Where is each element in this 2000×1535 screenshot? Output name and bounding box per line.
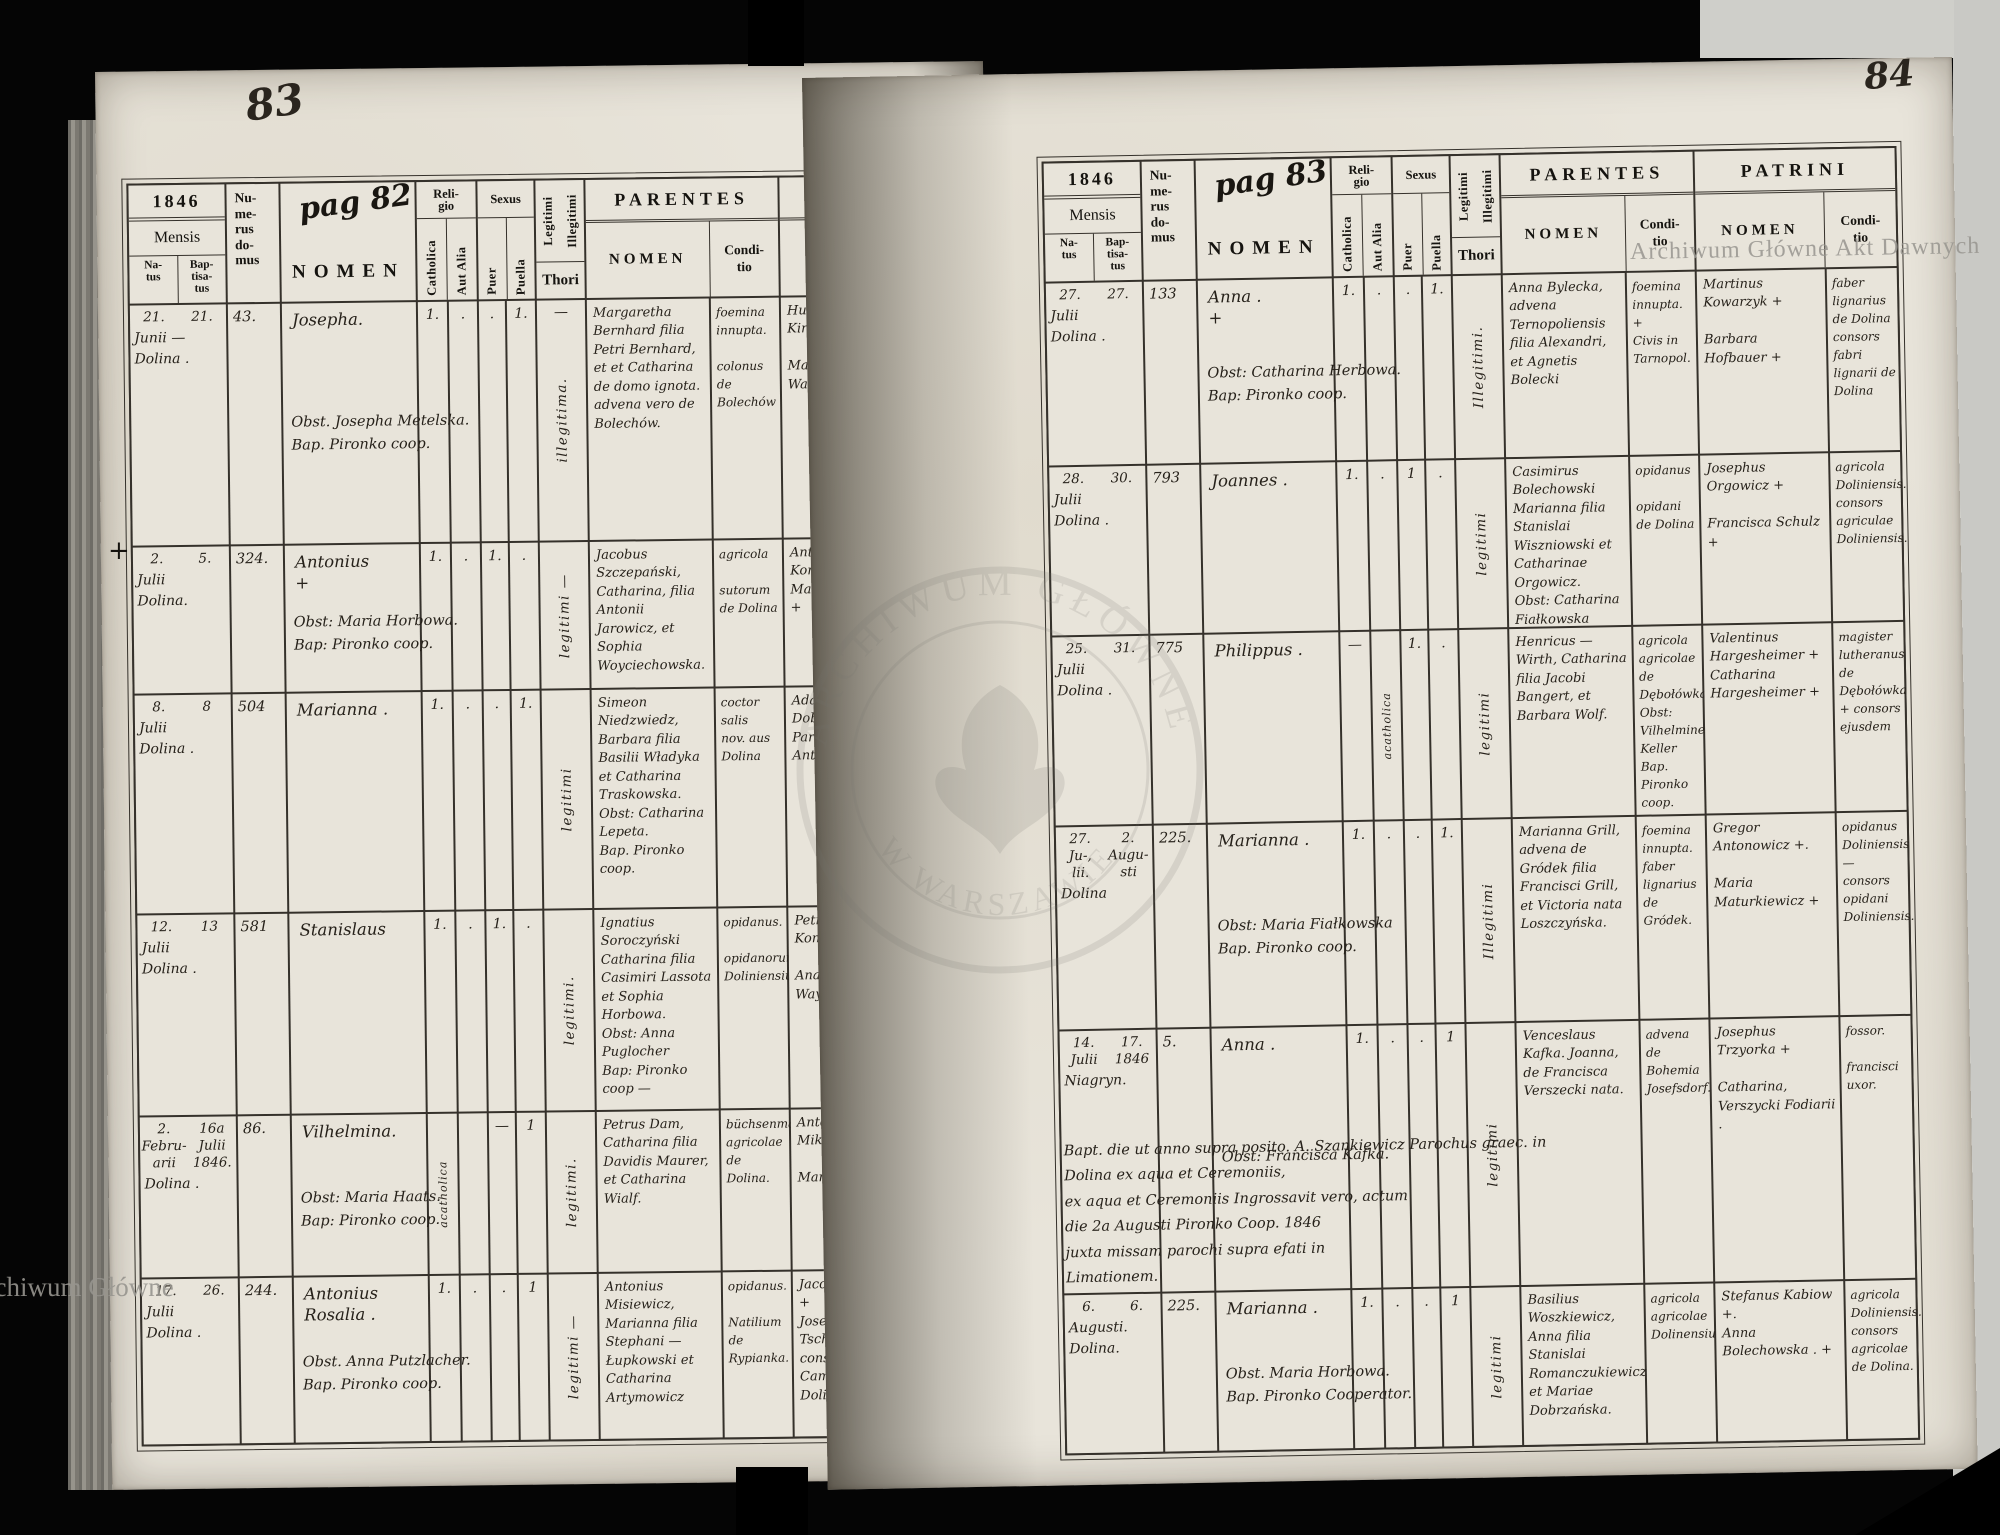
header-parentes: PARENTES NOMEN Condi- tio	[1501, 152, 1695, 273]
mark-puer: 1.	[1401, 631, 1430, 819]
baptisatus-day: 8	[183, 698, 231, 715]
natus-day: 8.	[135, 699, 183, 716]
header-parentes-label: PARENTES	[1501, 152, 1694, 199]
cell-date: 12. 13 Julii Dolina .	[137, 914, 235, 1115]
cell-date: 27. Ju-, lii. 2. Augu- sti Dolina	[1056, 826, 1156, 1030]
house-number: 793	[1147, 465, 1202, 634]
midwife-note: Obst. Anna Putzlacher. Bap. Pironko coop…	[303, 1348, 619, 1398]
header-aut-alia: Aut Alia	[1370, 223, 1386, 272]
header-legitimi: Legitimi	[1455, 172, 1471, 221]
cell-name: Anna . Obst: Francisca Kafka. Bapt. die …	[1211, 1026, 1350, 1290]
baptisatus-day: 21.	[178, 308, 226, 325]
mark-aut-alia: .	[456, 911, 486, 1111]
cell-name: Vilhelmina. Obst: Maria Haats. Bap: Piro…	[292, 1114, 428, 1276]
header-parentes-label: PARENTES	[585, 178, 778, 223]
header-legitimacy: Legitimi Illegitimi Thori	[535, 180, 584, 299]
header-aut-alia: Aut Alia	[454, 247, 470, 296]
page-number-right: 84	[1862, 52, 1916, 98]
thori-mark	[1453, 279, 1501, 280]
baptisatus-day: 13	[185, 918, 233, 935]
header-puella: Puella	[513, 258, 528, 295]
parentes-conditio: opidanus. opidanorum Doliniensium.	[718, 908, 788, 1109]
header-nomen: pag 82 NOMEN	[280, 182, 415, 302]
patrini-nomen: Gregor Antonowicz +. Maria Maturkiewicz …	[1707, 813, 1839, 1017]
marginal-note: Bapt. die ut anno supra posito. A. Szank…	[1063, 1130, 1551, 1291]
parentes-nomen: Ignatius Soroczyński Catharina filia Cas…	[594, 908, 718, 1109]
natus-day: 27.	[1046, 287, 1094, 305]
patrini-nomen: Martinus Kowarzyk + Barbara Hofbauer +	[1697, 269, 1828, 453]
header-numerus-domus: Nu- me- rus do- mus	[1142, 161, 1196, 280]
header-date-column: 1846 Mensis Na- tus Bap- tisa- tus	[1044, 162, 1142, 282]
midwife-note: Obst. Maria Horbowa. Bap. Pironko Cooper…	[1226, 1358, 1542, 1410]
house-number: 324.	[231, 546, 285, 693]
cell-name: Antonius Rosalia . Obst. Anna Putzlacher…	[294, 1276, 430, 1443]
patrini-nomen: Josephus Trzyorka + Catharina, Verszycki…	[1710, 1017, 1843, 1281]
parentes-conditio: agricola agricolae de Dębołówka. Obst: V…	[1633, 626, 1704, 815]
thori-mark	[1471, 1291, 1519, 1292]
header-patrini-label: PATRINI	[1694, 148, 1895, 195]
natus-day: 28.	[1049, 471, 1097, 489]
midwife-note: Obst: Maria Fiałkowska Bap. Pironko coop…	[1217, 910, 1533, 962]
header-parentes-nomen: NOMEN	[586, 222, 711, 299]
header-natus: Na- tus	[129, 256, 178, 304]
month-place: Niagryn.	[1060, 1067, 1156, 1092]
parentes-conditio: foemina innupta. faber lignarius de Gród…	[1637, 816, 1709, 1019]
midwife-note: Obst: Catharina Herbowa. Bap: Pironko co…	[1207, 357, 1523, 409]
month-place: Julii Dolina .	[135, 715, 232, 760]
mark-aut-alia: acatholica	[1371, 631, 1402, 819]
thori-mark	[544, 914, 592, 915]
legitimacy-note: legitimi	[1473, 511, 1490, 575]
baptisatus-day: 16a Julii 1846.	[188, 1120, 237, 1171]
month-place: Junii — Dolina .	[130, 325, 227, 370]
cell-date: 2. Febru- arii 16a Julii 1846. Dolina .	[140, 1116, 238, 1277]
header-religio-label: Reli- gio	[1332, 157, 1392, 195]
header-religio: Reli- gio Catholica Aut Alia	[1332, 157, 1393, 276]
patrini-conditio: agricola Doliniensis. consors agriculae …	[1830, 452, 1903, 621]
header-sexus: Sexus Puer Puella	[1393, 156, 1451, 275]
mark-aut-alia: .	[1368, 461, 1399, 629]
parentes-conditio: foemina innupta. + Civis in Tarnopol.	[1627, 272, 1698, 455]
mark-catholica: —	[1340, 632, 1372, 820]
legitimacy-note: legitimi.	[561, 975, 578, 1045]
cell-legitimacy: legitimi	[1456, 459, 1507, 628]
baptisatus-day: 30.	[1097, 470, 1145, 488]
header-legitimacy: Legitimi Illegitimi Thori	[1451, 155, 1501, 274]
header-patrini: PATRINI NOMEN Condi- tio	[1694, 148, 1896, 270]
month-place: Julii Dolina .	[1050, 487, 1147, 533]
mark-puer: 1	[1398, 461, 1427, 629]
child-name: Philippus .	[1204, 632, 1338, 662]
cell-name: Stanislaus	[289, 912, 425, 1114]
parentes-nomen: Henricus — Wirth, Catharina filia Jacobi…	[1509, 627, 1634, 817]
mark-puer: 1.	[486, 911, 514, 1111]
header-legitimi: Legitimi	[540, 196, 556, 245]
cell-date: 25. 31. Julii Dolina .	[1052, 636, 1151, 826]
month-place: Julii Dolina .	[1046, 303, 1143, 349]
patrini-conditio: faber lignarius de Dolina consors fabri …	[1827, 268, 1900, 451]
header-parentes-conditio: Condi- tio	[1625, 195, 1695, 271]
month-place: Julii Dolina.	[133, 567, 230, 612]
handwritten-pag-note: pag 82	[297, 177, 414, 227]
cell-date: 28. 30. Julii Dolina .	[1049, 466, 1148, 636]
header-patrini-conditio: Condi- tio	[1824, 191, 1896, 267]
cell-name: Anna . + Obst: Catharina Herbowa. Bap: P…	[1198, 278, 1335, 462]
house-number: 225.	[1154, 825, 1210, 1028]
house-number: 86.	[238, 1116, 292, 1277]
baptisatus-day: 31.	[1100, 640, 1148, 658]
month-place: Julii Dolina .	[142, 1299, 239, 1344]
page-number-left: 83	[242, 74, 307, 131]
thori-mark	[1456, 463, 1504, 464]
cell-name: Josepha. Obst. Josepha Metelska. Bap. Pi…	[282, 302, 419, 544]
midwife-note: Obst: Maria Haats. Bap: Pironko coop.	[301, 1184, 617, 1234]
header-year: 1846	[1044, 162, 1141, 200]
natus-day: 27. Ju-, lii.	[1056, 831, 1105, 882]
mark-catholica: 1.	[423, 692, 455, 910]
midwife-note: Obst: Maria Horbowa. Bap: Pironko coop.	[294, 607, 610, 657]
house-number: 581	[235, 914, 289, 1115]
thori-mark	[1463, 823, 1511, 824]
natus-day: 17.	[142, 1283, 190, 1300]
baptisatus-day: 17. 1846	[1108, 1034, 1157, 1069]
header-nomen-label: NOMEN	[1208, 237, 1321, 261]
patrini-nomen: Stefanus Kabiow +. Anna Bolechowska . +	[1715, 1281, 1846, 1441]
header-religio: Reli- gio Catholica Aut Alia	[416, 181, 476, 300]
patrini-conditio: fossor. francisci uxor.	[1840, 1016, 1915, 1279]
mark-aut-alia: .	[454, 691, 485, 909]
mark-puella: .	[1426, 460, 1457, 628]
parentes-nomen: Simeon Niedzwiedz, Barbara filia Basilii…	[592, 688, 717, 907]
header-puer: Puer	[485, 267, 500, 295]
child-name: Anna . +	[1198, 278, 1333, 329]
parentes-conditio: agricola agricolae Dolinensium	[1645, 1284, 1716, 1443]
month-place: Julii Dolina .	[1053, 657, 1150, 703]
header-parentes: PARENTES NOMEN Condi- tio	[585, 178, 778, 298]
scanner-edge-corner	[1700, 0, 1954, 58]
legitimacy-note: legitimi	[559, 767, 576, 831]
header-parentes-nomen: NOMEN	[1501, 196, 1626, 273]
binding-gap-top	[748, 0, 804, 66]
child-name: Antonius +	[285, 544, 420, 595]
baptisatus-day: 5.	[181, 550, 229, 567]
house-number: 244.	[240, 1278, 294, 1444]
month-place: Julii Dolina .	[138, 935, 235, 980]
header-catholica: Catholica	[1340, 216, 1356, 272]
header-sexus: Sexus Puer Puella	[477, 181, 534, 300]
natus-day: 2. Febru- arii	[140, 1121, 189, 1172]
baptisatus-day: 26.	[190, 1282, 238, 1299]
child-name: Stanislaus	[289, 912, 423, 941]
cell-name: Marianna . Obst: Maria Fiałkowska Bap. P…	[1208, 822, 1346, 1026]
patrini-nomen: Valentinus Hargesheimer + Catharina Harg…	[1703, 623, 1834, 813]
scanned-register-spread: 83 1846 Mensis Na- tus Bap- tisa- tus Nu…	[0, 0, 2000, 1535]
thori-mark	[1467, 1027, 1515, 1028]
header-illegitimi: Illegitimi	[1479, 169, 1495, 223]
mark-puella: .	[1429, 630, 1460, 818]
header-religio-label: Reli- gio	[416, 181, 475, 219]
patrini-conditio: agricola Doliniensis. consors agricolae …	[1845, 1280, 1918, 1439]
cell-legitimacy: legitimi	[542, 690, 593, 909]
house-number: 504	[233, 694, 288, 913]
header-natus: Na- tus	[1045, 234, 1094, 282]
cell-legitimacy: legitimi.	[544, 910, 594, 1111]
house-number: 43.	[228, 304, 283, 545]
thori-mark	[540, 546, 588, 547]
header-baptisatus: Bap- tisa- tus	[178, 255, 226, 303]
mark-catholica: 1.	[425, 912, 456, 1112]
margin-cross-mark: +	[108, 536, 130, 566]
child-name: Josepha.	[282, 302, 416, 331]
mark-puer: .	[484, 691, 513, 909]
baptisatus-day: 2. Augu- sti	[1104, 830, 1153, 881]
cell-date: 27. 27. Julii Dolina .	[1046, 282, 1145, 466]
header-thori: Thori	[1452, 236, 1501, 274]
legitimacy-note: legitimi	[1476, 691, 1493, 755]
month-place: Dolina	[1057, 880, 1153, 905]
header-mensis: Mensis	[1044, 198, 1141, 235]
cell-name: Marianna . Obst. Maria Horbowa. Bap. Pir…	[1216, 1290, 1353, 1450]
child-name: Marianna .	[287, 692, 421, 721]
cell-name: Marianna .	[287, 692, 424, 912]
header-year: 1846	[128, 184, 224, 221]
cell-name: Philippus .	[1204, 632, 1341, 822]
right-page: 84 1846 Mensis Na- tus Bap- tisa- tus Nu…	[802, 57, 1978, 1490]
cell-date: 6. 6. Augusti. Dolina.	[1064, 1294, 1163, 1454]
cell-date: 17. 26. Julii Dolina .	[142, 1278, 240, 1444]
cell-name: Joannes .	[1201, 462, 1338, 632]
parentes-nomen: Casimirus Bolechowski Marianna filia Sta…	[1506, 457, 1631, 627]
thori-mark	[542, 694, 590, 695]
baptisatus-day: 6.	[1112, 1298, 1160, 1316]
parentes-conditio: opidanus. Natilium de Rypianka.	[723, 1272, 793, 1438]
natus-day: 6.	[1064, 1299, 1112, 1317]
mark-puella: 1.	[512, 691, 543, 909]
natus-day: 2.	[133, 551, 181, 568]
header-puer: Puer	[1400, 243, 1416, 271]
child-name: Joannes .	[1201, 462, 1335, 492]
header-thori: Thori	[536, 261, 584, 299]
cell-date: 21. 21. Junii — Dolina .	[130, 304, 229, 545]
natus-day: 12.	[137, 919, 185, 936]
header-parentes-conditio: Condi- tio	[710, 221, 779, 297]
header-nomen-label: NOMEN	[292, 260, 405, 283]
mark-catholica: 1.	[1337, 462, 1369, 631]
house-number: 775	[1150, 635, 1205, 824]
mark-puella: .	[514, 911, 544, 1111]
child-name: Antonius Rosalia .	[294, 1276, 429, 1327]
month-place: Dolina .	[140, 1171, 236, 1195]
header-nomen: pag 83 NOMEN	[1196, 158, 1332, 278]
header-mensis: Mensis	[129, 220, 225, 256]
handwritten-pag-note: pag 83	[1212, 154, 1329, 205]
house-number: 225.	[1162, 1293, 1217, 1452]
header-illegitimi: Illegitimi	[564, 194, 580, 248]
thori-mark	[547, 1116, 595, 1117]
header-baptisatus: Bap- tisa- tus	[1093, 233, 1141, 281]
cell-legitimacy: legitimi	[1459, 629, 1510, 818]
cell-date: 8. 8 Julii Dolina .	[135, 694, 234, 913]
house-number: 133	[1144, 281, 1199, 464]
register-table-right: 1846 Mensis Na- tus Bap- tisa- tus Nu- m…	[1042, 146, 1921, 1455]
cell-date: 2. 5. Julii Dolina.	[133, 546, 231, 693]
patrini-conditio: magister lutheranus de Dębołówka + conso…	[1833, 622, 1906, 811]
child-name: Vilhelmina.	[292, 1114, 426, 1143]
natus-day: 14. Julii	[1060, 1035, 1109, 1070]
thori-mark	[1459, 633, 1507, 634]
baptisatus-day: 27.	[1094, 286, 1142, 304]
child-name: Marianna .	[1216, 1290, 1350, 1320]
binding-gap-bottom	[736, 1467, 808, 1535]
thori-mark	[549, 1278, 597, 1279]
header-puella: Puella	[1429, 234, 1445, 271]
parentes-conditio: agricola sutorum de Dolina	[714, 540, 784, 687]
parentes-conditio: foemina innupta. colonus de Bolechów	[711, 298, 782, 539]
header-patrini-nomen: NOMEN	[1695, 192, 1825, 269]
natus-day: 25.	[1052, 641, 1100, 659]
parentes-conditio: advena de Bohemia Josefsdorf.	[1640, 1020, 1713, 1283]
header-catholica: Catholica	[424, 240, 440, 296]
midwife-note: Obst. Josepha Metelska. Bap. Pironko coo…	[291, 408, 607, 458]
natus-day: 21.	[130, 309, 178, 326]
child-name: Anna .	[1211, 1026, 1345, 1056]
parentes-conditio: opidanus opidani de Dolina	[1630, 456, 1701, 625]
patrini-conditio: opidanus Doliniensis — consors opidani D…	[1837, 812, 1911, 1015]
patrini-nomen: Josephus Orgowicz + Francisca Schulz +	[1700, 453, 1831, 623]
month-place: Augusti. Dolina.	[1065, 1315, 1162, 1361]
header-sexus-label: Sexus	[477, 181, 533, 219]
header-date-column: 1846 Mensis Na- tus Bap- tisa- tus	[128, 184, 225, 303]
header-numerus-domus: Nu- me- rus do- mus	[226, 184, 279, 303]
parentes-conditio: büchsenmacher agricolae de Dolina.	[721, 1110, 791, 1271]
parentes-conditio: coctor salis nov. aus Dolina	[716, 688, 787, 907]
header-sexus-label: Sexus	[1393, 156, 1450, 194]
cell-name: Antonius + Obst: Maria Horbowa. Bap: Pir…	[285, 544, 421, 692]
thori-mark: —	[537, 304, 585, 321]
child-name: Marianna .	[1208, 822, 1342, 852]
